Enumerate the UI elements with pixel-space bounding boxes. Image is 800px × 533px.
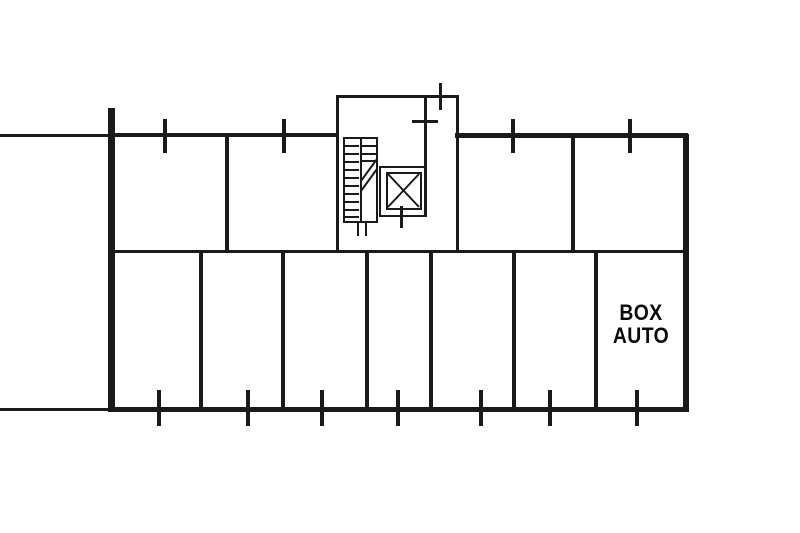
garage-box-2 xyxy=(201,253,283,407)
right-outer-wall xyxy=(683,134,689,412)
garage-box-1 xyxy=(112,253,201,407)
garage-box-6 xyxy=(514,253,596,407)
box-auto-label: BOX AUTO xyxy=(602,301,679,347)
upper-room-3 xyxy=(459,137,573,250)
stairwell xyxy=(337,97,459,250)
garage-box-3 xyxy=(283,253,367,407)
garage-box-5 xyxy=(431,253,514,407)
garage-box-4 xyxy=(367,253,431,407)
left-extension-top-line xyxy=(0,134,111,137)
upper-room-1 xyxy=(112,137,227,250)
box-auto-label-line2: AUTO xyxy=(602,324,679,347)
upper-room-4 xyxy=(573,137,683,250)
left-extension-bottom-line xyxy=(0,408,110,411)
floor-plan-canvas: BOX AUTO xyxy=(0,0,800,533)
upper-room-2 xyxy=(227,137,337,250)
box-auto-label-line1: BOX xyxy=(602,301,679,324)
